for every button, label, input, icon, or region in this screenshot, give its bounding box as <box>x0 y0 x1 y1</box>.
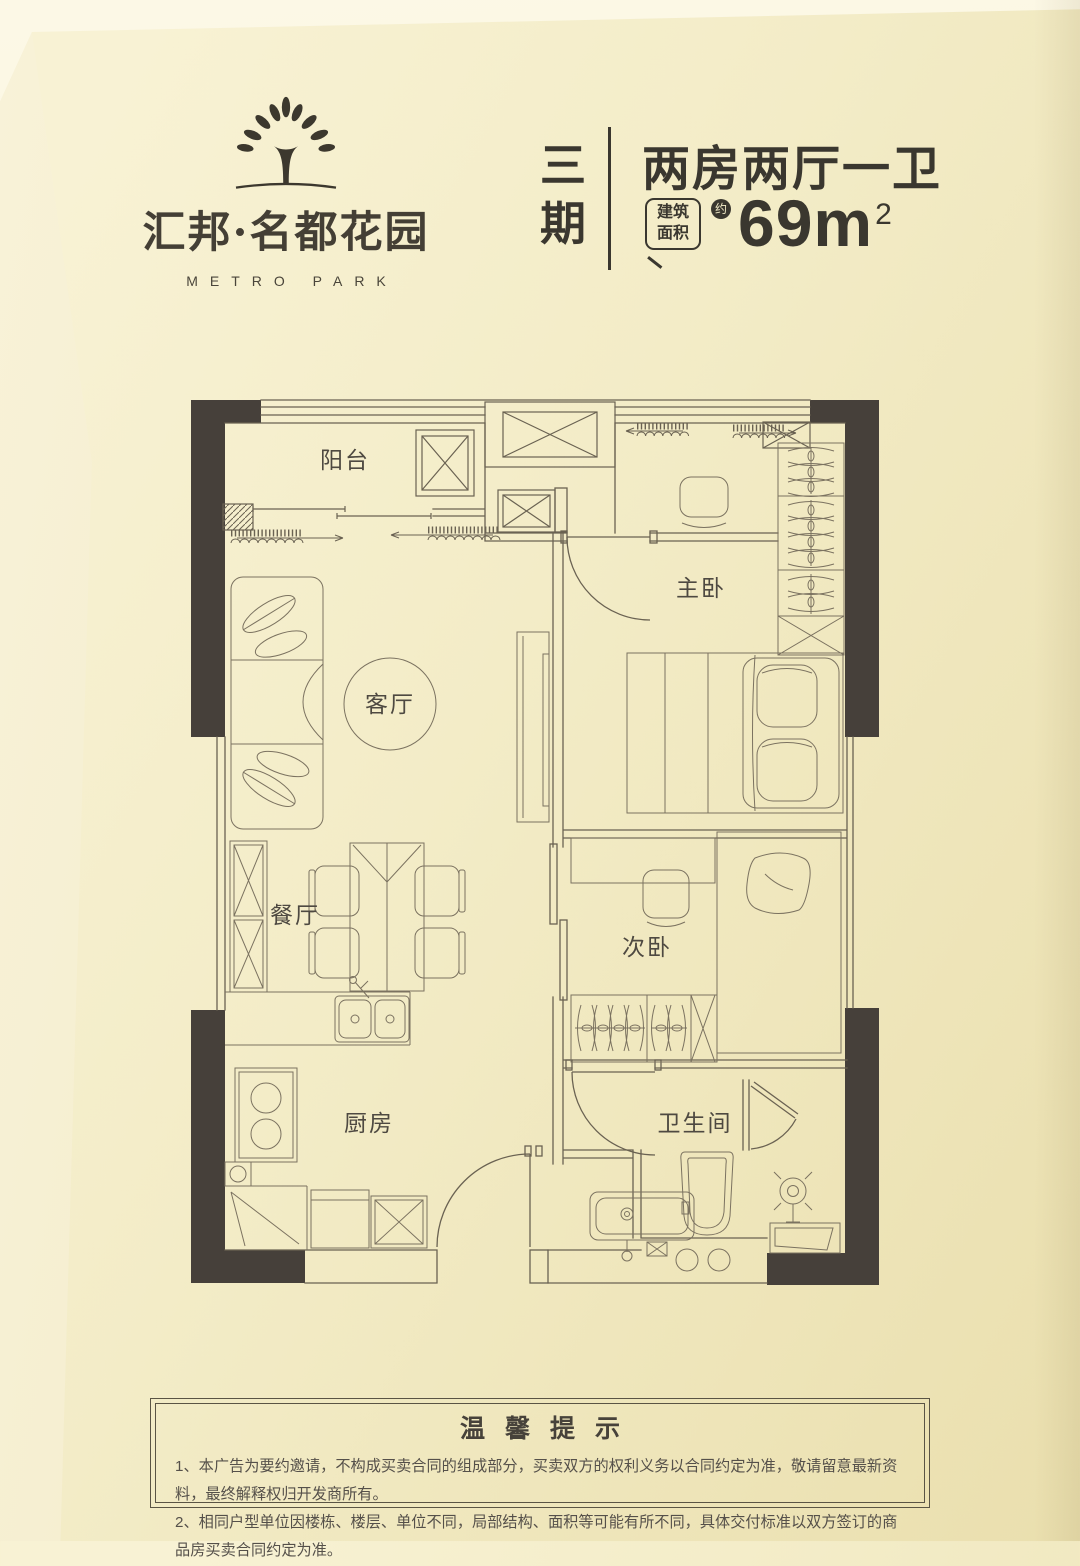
tv <box>543 654 549 806</box>
sliding-door-panel <box>550 844 557 924</box>
approx-badge: 约 <box>711 199 731 219</box>
second-bed <box>717 832 841 1053</box>
notice-box: 温馨提示 1、本广告为要约邀请，不构成买卖合同的组成部分，买卖双方的权利义务以合… <box>150 1398 930 1508</box>
brand-name: 汇邦·名都花园 <box>130 198 442 260</box>
dining-cabinet <box>230 841 267 992</box>
furniture <box>225 443 844 1271</box>
sliding-door-panel <box>560 920 567 1000</box>
master-chair <box>680 477 728 528</box>
floor-plan: 阳台 客厅 主卧 餐厅 次卧 厨房 卫生间 <box>185 392 895 1317</box>
entrance-door-arc <box>437 1154 530 1247</box>
brand-logo: 汇邦·名都花园 METRO PARK <box>130 96 442 289</box>
area-tag-line1: 建筑 <box>650 203 696 224</box>
header-divider <box>608 127 611 270</box>
room-label-bathroom: 卫生间 <box>658 1110 733 1136</box>
tv-cabinet <box>517 632 549 822</box>
shower-door <box>751 1082 798 1149</box>
curtains <box>231 426 796 543</box>
room-label-second: 次卧 <box>622 934 672 960</box>
room-label-living: 客厅 <box>365 691 415 717</box>
shower-head-icon <box>774 1172 812 1222</box>
room-label-dining: 餐厅 <box>270 902 320 928</box>
area-info: 建筑 面积 约 69m2 <box>645 198 891 253</box>
master-wardrobe <box>778 443 844 655</box>
doors <box>437 531 798 1247</box>
phase-label: 三期 <box>537 141 583 257</box>
balcony-sliding-door <box>253 506 431 519</box>
kitchen-sink <box>225 977 410 1046</box>
background-right-shade <box>1034 0 1080 1541</box>
hatched-pier <box>223 504 253 530</box>
area-superscript: 2 <box>875 198 893 231</box>
pillow <box>757 665 817 727</box>
pillow <box>747 853 810 914</box>
room-label-kitchen: 厨房 <box>344 1110 394 1136</box>
kitchen-corner-counter <box>225 1162 427 1250</box>
dining-table <box>309 843 465 991</box>
second-wardrobe <box>571 995 717 1062</box>
master-bed <box>627 653 843 813</box>
toilet <box>681 1152 733 1235</box>
sofa <box>231 577 323 829</box>
notice-item: 2、相同户型单位因楼栋、楼层、单位不同，局部结构、面积等可能有所不同，具体交付标… <box>175 1509 905 1565</box>
pillow <box>757 739 817 801</box>
duct-boxes <box>416 402 810 532</box>
room-label-master: 主卧 <box>676 575 726 601</box>
desk <box>571 838 715 927</box>
desk-chair <box>643 870 689 918</box>
room-label-balcony: 阳台 <box>320 447 370 473</box>
brand-subtitle: METRO PARK <box>130 273 442 289</box>
bathroom-door-arc <box>572 1072 655 1155</box>
master-door-arc <box>567 537 650 620</box>
notice-inner-border <box>155 1403 925 1503</box>
area-tag-bubble: 建筑 面积 <box>645 198 701 250</box>
stove <box>235 1068 297 1162</box>
tree-icon <box>222 96 350 196</box>
area-value: 69m2 <box>738 194 891 253</box>
area-tag-line2: 面积 <box>650 224 696 245</box>
